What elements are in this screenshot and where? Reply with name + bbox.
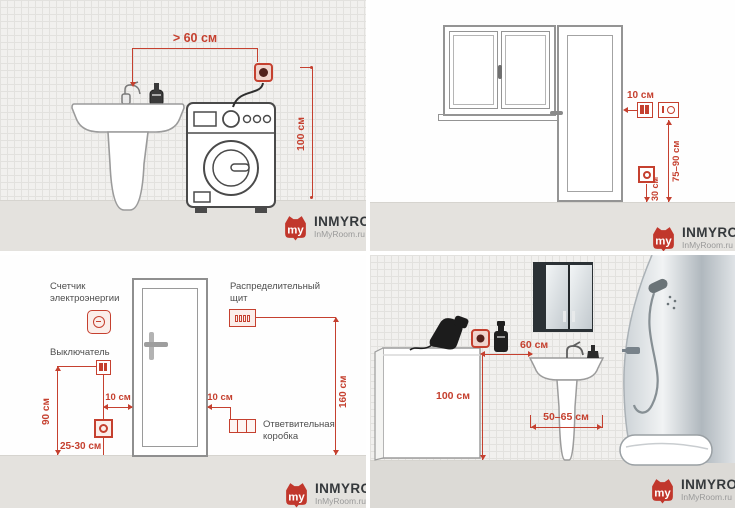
outlet-icon bbox=[94, 419, 113, 438]
soap-dispenser bbox=[587, 345, 599, 358]
pedestal-sink bbox=[68, 80, 190, 214]
dim-height-line bbox=[482, 354, 483, 460]
brand-name: INMYROOM bbox=[681, 479, 735, 491]
dim-dot bbox=[310, 66, 313, 69]
door-panel bbox=[142, 288, 198, 447]
dim-height-line bbox=[312, 67, 313, 198]
door-handle bbox=[144, 342, 168, 347]
dim-distance-line bbox=[132, 48, 258, 49]
cat-logo-icon: my bbox=[283, 481, 310, 508]
brand-name: INMYROOM bbox=[314, 216, 366, 228]
svg-text:my: my bbox=[287, 225, 304, 237]
arrow-right bbox=[128, 404, 133, 410]
arrow-up bbox=[333, 317, 339, 322]
dim-switch-line bbox=[57, 366, 58, 455]
arrow-down bbox=[480, 455, 486, 460]
dim-dot bbox=[310, 196, 313, 199]
switch-label: Выключатель bbox=[50, 347, 110, 359]
brand-logo: my INMYROOM InMyRoom.ru bbox=[649, 477, 735, 505]
pedestal-sink bbox=[530, 358, 603, 460]
panel-window-door: 10 см 75–90 см 30 см my INMYROO bbox=[370, 0, 735, 251]
shower-base bbox=[620, 435, 712, 465]
junction-box-icon bbox=[229, 419, 256, 433]
dim-gap-label: 60 см bbox=[520, 339, 548, 351]
svg-text:my: my bbox=[288, 492, 305, 504]
cosmetic-bottle bbox=[494, 321, 508, 352]
dim-range-label: 75–90 см bbox=[671, 128, 684, 194]
sink-basin bbox=[72, 104, 184, 210]
panel-label: Распределительныйщит bbox=[230, 281, 320, 305]
dim-height-label: 100 см bbox=[295, 110, 309, 158]
arrow-right bbox=[597, 424, 602, 430]
dim-panel-line bbox=[335, 317, 336, 455]
dim-gap-line bbox=[482, 354, 532, 355]
power-cable bbox=[225, 80, 270, 108]
dim-panel-tick bbox=[256, 317, 335, 318]
dim-switch-label: 90 см bbox=[41, 391, 55, 433]
brand-site: InMyRoom.ru bbox=[681, 491, 735, 503]
distribution-board-icon bbox=[229, 309, 256, 327]
soap-bottle bbox=[150, 83, 163, 106]
switch-icon bbox=[637, 102, 653, 118]
bathroom-scene bbox=[370, 255, 735, 508]
brand-logo: my INMYROOM InMyRoom.ru bbox=[282, 214, 366, 242]
outlet-icon bbox=[658, 102, 679, 118]
arrow-down bbox=[130, 82, 136, 87]
dim-switch-tick bbox=[57, 366, 96, 367]
faucet-icon bbox=[567, 342, 583, 358]
junction-label: Ответвительнаякоробка bbox=[263, 419, 335, 443]
arrow-left bbox=[531, 424, 536, 430]
brand-site: InMyRoom.ru bbox=[315, 495, 366, 507]
brand-logo: my INMYROOM InMyRoom.ru bbox=[650, 225, 735, 251]
cat-logo-icon: my bbox=[282, 214, 309, 242]
junction-drop-line bbox=[230, 407, 231, 419]
dim-width-tick-right bbox=[602, 415, 603, 428]
brand-name: INMYROOM bbox=[315, 483, 366, 495]
window-handle bbox=[498, 65, 502, 79]
dim-distance-drop-right bbox=[257, 48, 258, 62]
dim-outlet-label: 25-30 см bbox=[60, 441, 101, 452]
brand-site: InMyRoom.ru bbox=[314, 228, 366, 240]
balcony-door bbox=[557, 25, 623, 202]
entry-door bbox=[132, 278, 208, 457]
arrow-up bbox=[666, 120, 672, 125]
window-pane-left bbox=[449, 31, 498, 109]
dim-width-label: 50–65 см bbox=[528, 411, 604, 423]
window bbox=[443, 25, 556, 116]
panel-washer-outlet: > 60 см 100 см my INMYROOM InMyRoom.ru bbox=[0, 0, 366, 251]
arrow-down bbox=[333, 450, 339, 455]
mirror-cabinet bbox=[533, 262, 593, 332]
outlet-icon bbox=[472, 330, 489, 347]
dim-low-label: 30 см bbox=[650, 176, 662, 202]
window-pane-right bbox=[501, 31, 550, 109]
cabinet-handle bbox=[572, 311, 575, 322]
arrow-left bbox=[207, 404, 212, 410]
cat-logo-icon: my bbox=[650, 225, 677, 251]
infographic-grid: > 60 см 100 см my INMYROOM InMyRoom.ru bbox=[0, 0, 735, 508]
switch-drop-line bbox=[103, 375, 104, 455]
arrow-up bbox=[55, 366, 61, 371]
dim-gap-left-label: 10 см bbox=[103, 392, 133, 403]
hair-dryer bbox=[410, 315, 469, 350]
dim-gap-right-label: 10 см bbox=[205, 392, 235, 403]
brand-site: InMyRoom.ru bbox=[682, 239, 735, 251]
dim-gap-label: 10 см bbox=[627, 90, 654, 101]
door-handle bbox=[550, 111, 563, 115]
panel-door-wiring: Счетчикэлектроэнергии Выключатель 90 см … bbox=[0, 255, 366, 508]
arrow-right bbox=[528, 351, 533, 357]
washer-display bbox=[194, 112, 216, 126]
cabinet-handle bbox=[563, 311, 566, 322]
electric-meter-icon bbox=[87, 310, 111, 334]
cat-logo-icon: my bbox=[649, 477, 676, 505]
dim-range-line bbox=[668, 120, 669, 202]
brand-name: INMYROOM bbox=[682, 227, 735, 239]
dim-panel-label: 160 см bbox=[338, 367, 352, 417]
arrow-left bbox=[623, 107, 628, 113]
dim-distance-label: > 60 см bbox=[132, 31, 258, 45]
switch-icon bbox=[96, 360, 111, 375]
counter-cabinet bbox=[375, 348, 480, 460]
svg-text:my: my bbox=[654, 488, 671, 500]
dim-width-line bbox=[530, 427, 603, 428]
washing-machine bbox=[185, 100, 277, 214]
door-panel bbox=[567, 35, 613, 192]
brand-logo: my INMYROOM InMyRoom.ru bbox=[283, 481, 366, 508]
dim-distance-drop-left bbox=[132, 48, 133, 82]
panel-bathroom: 60 см 100 см 50–65 см my INMYROOM InMyRo… bbox=[370, 255, 735, 508]
shower-cabin bbox=[620, 255, 735, 465]
washer-knob bbox=[223, 111, 239, 127]
dim-height-label: 100 см bbox=[436, 390, 470, 402]
arrow-left bbox=[103, 404, 108, 410]
meter-label: Счетчикэлектроэнергии bbox=[50, 281, 119, 305]
svg-text:my: my bbox=[655, 236, 672, 248]
arrow-down bbox=[666, 197, 672, 202]
